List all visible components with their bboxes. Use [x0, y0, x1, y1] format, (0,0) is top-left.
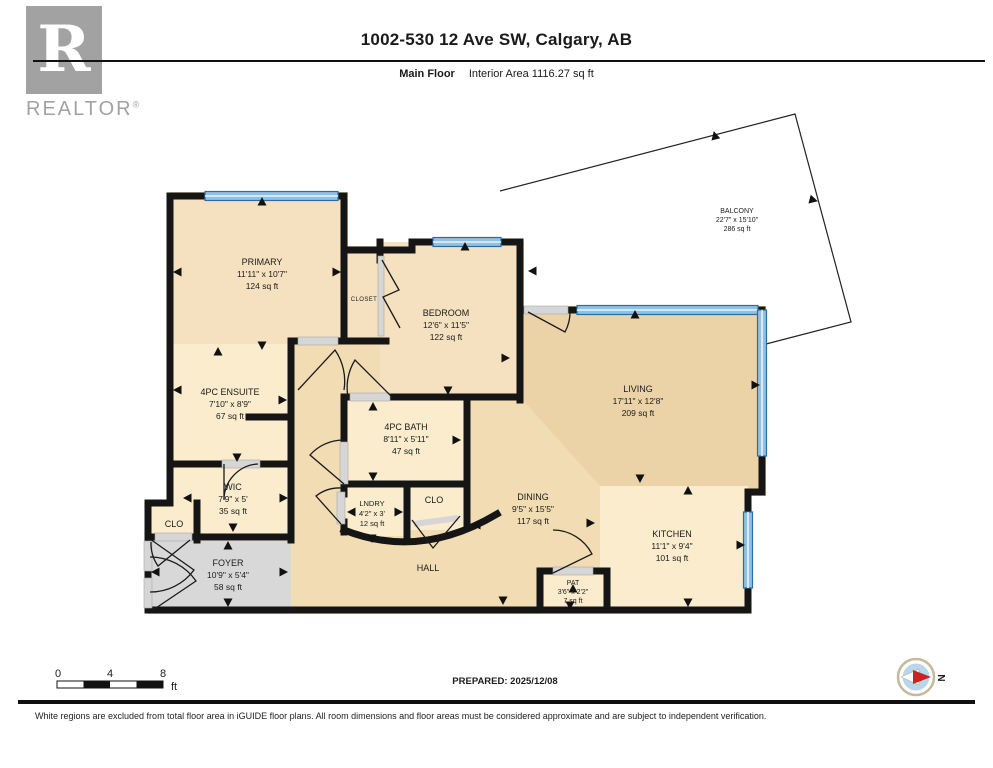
floor-plan-drawing: PRIMARY 11'11" x 10'7" 124 sq ft CLOSET … [0, 0, 993, 768]
label-dining-area: 117 sq ft [517, 516, 550, 526]
scale-tick-8: 8 [160, 668, 166, 680]
floor-plan-page: R REALTOR® 1002-530 12 Ave SW, Calgary, … [0, 0, 993, 768]
label-primary: PRIMARY [242, 257, 283, 267]
label-foyer: FOYER [212, 558, 244, 568]
label-pat-area: 7 sq ft [563, 598, 582, 605]
label-wic-area: 35 sq ft [219, 506, 248, 516]
label-pat-dims: 3'6" x 2'2" [558, 589, 589, 596]
compass-icon: N [898, 659, 946, 695]
label-hall: HALL [417, 563, 440, 573]
scale-unit: ft [171, 681, 177, 693]
scale-bar: 0 4 8 ft [55, 668, 177, 693]
label-primary-area: 124 sq ft [246, 281, 279, 291]
label-balcony-area: 286 sq ft [724, 226, 751, 233]
label-dining: DINING [517, 492, 549, 502]
label-bath: 4PC BATH [384, 422, 427, 432]
label-bedroom: BEDROOM [423, 308, 470, 318]
label-kitchen-dims: 11'1" x 9'4" [651, 541, 692, 551]
page-title: 1002-530 12 Ave SW, Calgary, AB [0, 30, 993, 50]
compass-north-label: N [935, 674, 946, 681]
label-ensuite-area: 67 sq ft [216, 411, 245, 421]
label-lndry: LNDRY [359, 499, 384, 508]
label-dining-dims: 9'5" x 15'5" [512, 504, 554, 514]
label-kitchen-area: 101 sq ft [656, 553, 689, 563]
realtor-logo: R REALTOR® [26, 6, 141, 121]
label-bedroom-area: 122 sq ft [430, 332, 463, 342]
dimension-arrow [528, 267, 537, 276]
footer-disclaimer: White regions are excluded from total fl… [35, 711, 965, 721]
label-lndry-dims: 4'2" x 3' [359, 509, 386, 518]
registered-mark: ® [133, 99, 142, 109]
label-closet: CLOSET [351, 297, 377, 303]
footer-divider [18, 700, 975, 704]
realtor-logo-box: R [26, 6, 102, 94]
scale-tick-0: 0 [55, 668, 61, 680]
label-bath-dims: 8'11" x 5'11" [383, 434, 428, 444]
label-wic-dims: 7'9" x 5' [218, 494, 248, 504]
label-kitchen: KITCHEN [652, 529, 692, 539]
scale-tick-4: 4 [107, 668, 113, 680]
label-foyer-area: 58 sq ft [214, 582, 243, 592]
label-wic: WIC [224, 482, 242, 492]
title-divider [33, 60, 985, 62]
label-ensuite: 4PC ENSUITE [200, 387, 259, 397]
prepared-date: PREPARED: 2025/12/08 [452, 676, 557, 687]
room-primary [170, 192, 348, 344]
label-foyer-dims: 10'9" x 5'4" [207, 570, 249, 580]
floor-label: Main Floor [399, 68, 455, 80]
label-ensuite-dims: 7'10" x 8'9" [209, 399, 251, 409]
realtor-logo-letter: R [37, 18, 90, 82]
floor-subtitle: Main FloorInterior Area 1116.27 sq ft [0, 68, 993, 80]
realtor-logo-word: REALTOR® [26, 98, 141, 121]
label-balcony: BALCONY [720, 208, 754, 215]
label-clo-hall: CLO [425, 495, 444, 505]
label-lndry-area: 12 sq ft [360, 519, 386, 528]
label-living-area: 209 sq ft [622, 408, 655, 418]
label-clo-foyer: CLO [165, 519, 184, 529]
label-bedroom-dims: 12'6" x 11'5" [423, 320, 469, 330]
label-living: LIVING [623, 384, 653, 394]
label-primary-dims: 11'11" x 10'7" [237, 269, 287, 279]
label-balcony-dims: 22'7" x 15'10" [716, 217, 759, 224]
label-pat: PAT [567, 580, 580, 587]
dimension-arrow [709, 130, 720, 140]
interior-area-label: Interior Area 1116.27 sq ft [469, 68, 594, 80]
label-bath-area: 47 sq ft [392, 446, 421, 456]
label-living-dims: 17'11" x 12'8" [613, 396, 664, 406]
